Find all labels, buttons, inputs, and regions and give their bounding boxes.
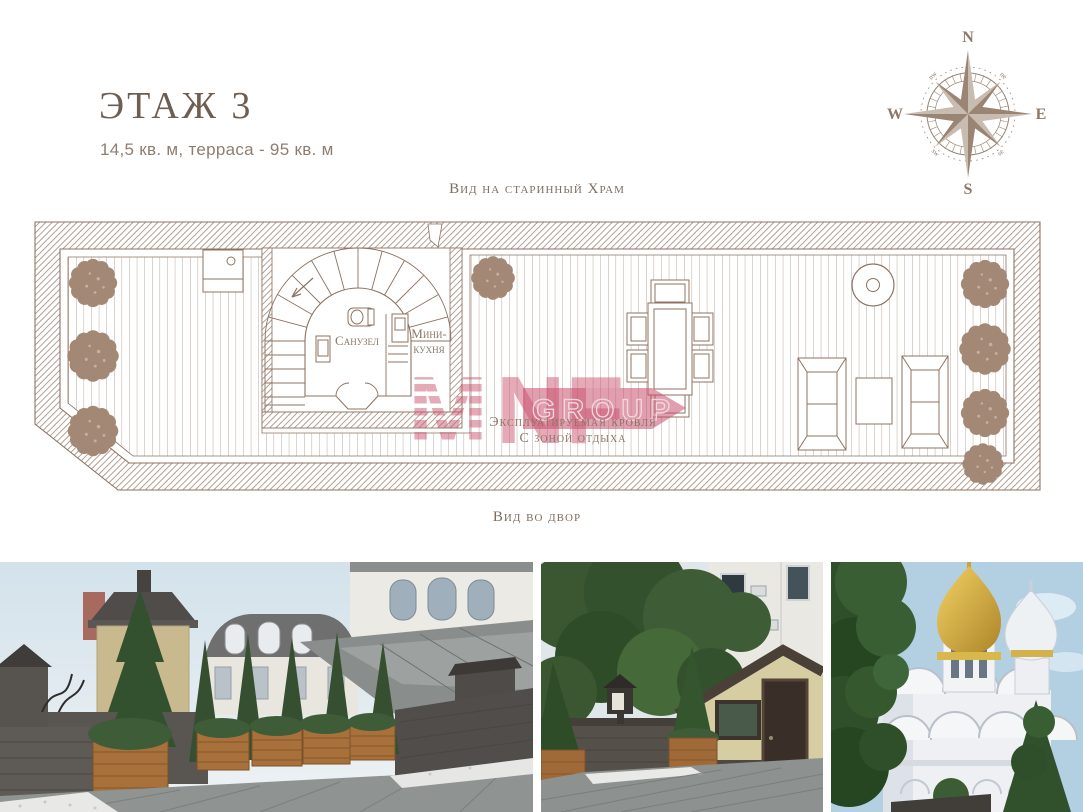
terrace-city-illustration — [0, 562, 533, 812]
toilet-icon — [348, 308, 374, 326]
terrace-label-1: Эксплуатируемая кровля — [489, 415, 656, 430]
photo-terrace-courtyard[interactable] — [541, 562, 823, 812]
mini-kitchen-label-2: кухня — [413, 341, 444, 356]
floor-plan: Санузел Мини- кухня M NF GROUP Эксплуати… — [0, 0, 1083, 560]
listing-page: ЭТАЖ 3 14,5 кв. м, терраса - 95 кв. м — [0, 0, 1083, 812]
church-illustration — [831, 562, 1083, 812]
photo-church[interactable] — [831, 562, 1083, 812]
terrace-label-2: С зоной отдыха — [520, 431, 627, 446]
grill-unit — [203, 250, 243, 292]
mini-kitchen-label-1: Мини- — [411, 326, 446, 341]
round-table — [852, 264, 894, 306]
watermark-m: M — [408, 357, 488, 464]
bathroom-label: Санузел — [335, 333, 379, 348]
terrace-courtyard-illustration — [541, 562, 823, 812]
photo-terrace-city[interactable] — [0, 562, 533, 812]
